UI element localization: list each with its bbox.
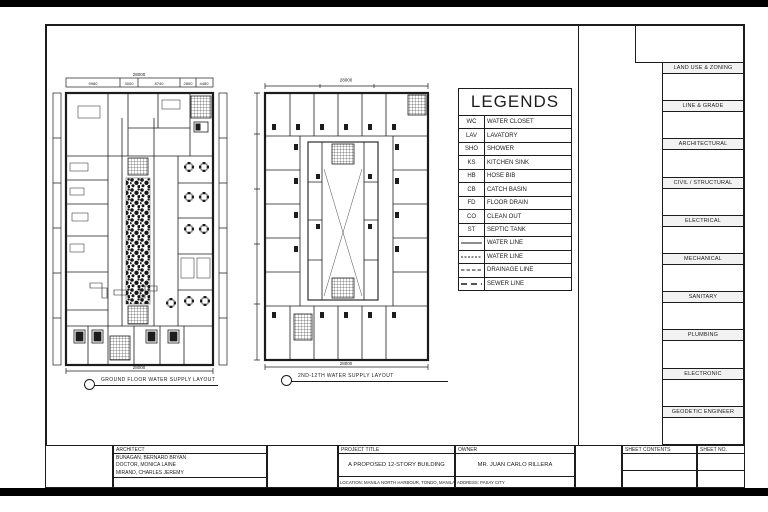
plan2-total-dim-bottom: 28000 bbox=[340, 361, 353, 366]
plan2-caption-text: 2ND-12TH WATER SUPPLY LAYOUT bbox=[298, 373, 394, 381]
architect-name: BUNAGAN, BERNARD BRYAN bbox=[116, 455, 264, 462]
discipline-index-sidebar: LAND USE & ZONING LINE & GRADE ARCHITECT… bbox=[662, 63, 744, 445]
plan2-total-dim-top: 28000 bbox=[340, 78, 353, 83]
architect-name: DOCTOR, MONICA LAINE bbox=[116, 462, 264, 469]
sidebar-empty-box bbox=[662, 302, 744, 330]
sheet-no-cell: SHEET NO. bbox=[697, 445, 745, 488]
legend-label: LAVATORY bbox=[485, 129, 571, 141]
legend-label: SEWER LINE bbox=[485, 278, 571, 290]
plan2-walls bbox=[265, 93, 428, 360]
legend-label: HOSE BIB bbox=[485, 170, 571, 182]
sidebar-section: CIVIL / STRUCTURAL bbox=[662, 178, 744, 216]
plan1-dining-tables bbox=[166, 162, 210, 308]
drainage-line-icon bbox=[459, 264, 485, 276]
sidebar-empty-box bbox=[662, 226, 744, 254]
title-block: ARCHITECT BUNAGAN, BERNARD BRYAN DOCTOR,… bbox=[45, 445, 745, 488]
legend-label: SHOWER bbox=[485, 143, 571, 155]
plan1-bottom-dimension: 28000 bbox=[66, 365, 213, 374]
plan1-dim-seg: 4480 bbox=[200, 81, 210, 86]
water-line-dashed-icon bbox=[459, 251, 485, 263]
owner-cell: OWNER MR. JUAN CARLO RILLERA ADDRESS: PA… bbox=[455, 445, 575, 488]
sheet-vertical-divider bbox=[578, 24, 579, 445]
legend-row: COCLEAN OUT bbox=[459, 210, 571, 223]
sheet-no-row bbox=[698, 454, 744, 471]
sidebar-empty-box bbox=[662, 340, 744, 368]
plan1-stair-cores bbox=[110, 96, 211, 360]
legend-abbr: FD bbox=[459, 197, 485, 209]
legend-line-row: DRAINAGE LINE bbox=[459, 264, 571, 277]
sidebar-section: GEODETIC ENGINEER bbox=[662, 407, 744, 445]
plan1-total-dim-bottom: 28000 bbox=[133, 365, 146, 370]
legend-abbr: CB bbox=[459, 183, 485, 195]
sheet-contents-row bbox=[623, 471, 696, 487]
legend-label: WATER LINE bbox=[485, 237, 571, 249]
project-title-text: A PROPOSED 12-STORY BUILDING bbox=[339, 454, 454, 477]
sidebar-section: ELECTRICAL bbox=[662, 216, 744, 254]
legends-box: LEGENDS WCWATER CLOSET LAVLAVATORY SHOSH… bbox=[458, 88, 572, 291]
sheet-no-row bbox=[698, 471, 744, 487]
architect-names: BUNAGAN, BERNARD BRYAN DOCTOR, MONICA LA… bbox=[114, 454, 266, 478]
titleblock-empty-cell bbox=[45, 445, 113, 488]
sheet-contents-row bbox=[623, 454, 696, 471]
sidebar-section: SANITARY bbox=[662, 292, 744, 330]
project-location-text: LOCATION: MANILA NORTH HARBOUR, TONDO, M… bbox=[339, 477, 454, 487]
typical-floor-plan-drawing: 28000 bbox=[250, 74, 435, 374]
sidebar-empty-box bbox=[662, 417, 744, 445]
drawing-bubble-icon bbox=[84, 379, 95, 390]
architect-header: ARCHITECT bbox=[114, 446, 266, 454]
legend-row: WCWATER CLOSET bbox=[459, 116, 571, 129]
sewer-line-icon bbox=[459, 278, 485, 290]
plan1-caption: GROUND FLOOR WATER SUPPLY LAYOUT bbox=[84, 377, 218, 386]
project-title-cell: PROJECT TITLE A PROPOSED 12-STORY BUILDI… bbox=[338, 445, 455, 488]
legend-label: KITCHEN SINK bbox=[485, 156, 571, 168]
plan2-caption: 2ND-12TH WATER SUPPLY LAYOUT bbox=[281, 373, 448, 382]
sidebar-empty-box bbox=[662, 264, 744, 292]
plan2-atrium-x bbox=[324, 169, 362, 296]
water-line-solid-icon bbox=[459, 237, 485, 249]
sheet-contents-header: SHEET CONTENTS bbox=[623, 446, 696, 454]
sheet-no-header: SHEET NO. bbox=[698, 446, 744, 454]
architect-cell: ARCHITECT BUNAGAN, BERNARD BRYAN DOCTOR,… bbox=[113, 445, 267, 488]
owner-address-text: ADDRESS: PASAY CITY bbox=[456, 477, 574, 487]
sidebar-section: LAND USE & ZONING bbox=[662, 63, 744, 101]
sidebar-section: LINE & GRADE bbox=[662, 101, 744, 139]
legend-row: KSKITCHEN SINK bbox=[459, 156, 571, 169]
architect-signature-row bbox=[114, 478, 266, 487]
titleblock-empty-cell bbox=[267, 445, 338, 488]
legend-row: HBHOSE BIB bbox=[459, 170, 571, 183]
sidebar-empty-box bbox=[662, 379, 744, 407]
plan1-dim-seg: 3000 bbox=[125, 81, 135, 86]
plan1-total-dim-top: 28000 bbox=[133, 72, 146, 77]
plan1-dim-seg: 9980 bbox=[89, 81, 99, 86]
sheet-header-box bbox=[635, 24, 745, 63]
legend-abbr: ST bbox=[459, 224, 485, 236]
plan1-planting-strip bbox=[126, 178, 150, 304]
legend-label: SEPTIC TANK bbox=[485, 224, 571, 236]
legend-label: DRAINAGE LINE bbox=[485, 264, 571, 276]
sidebar-section: MECHANICAL bbox=[662, 254, 744, 292]
legend-label: CATCH BASIN bbox=[485, 183, 571, 195]
sheet-contents-cell: SHEET CONTENTS bbox=[622, 445, 697, 488]
legend-line-row: WATER LINE bbox=[459, 237, 571, 250]
sidebar-section: PLUMBING bbox=[662, 330, 744, 368]
sidebar-empty-box bbox=[662, 111, 744, 139]
legend-abbr: LAV bbox=[459, 129, 485, 141]
legend-row: CBCATCH BASIN bbox=[459, 183, 571, 196]
owner-name-text: MR. JUAN CARLO RILLERA bbox=[456, 454, 574, 477]
legend-line-row: WATER LINE bbox=[459, 251, 571, 264]
legend-label: CLEAN OUT bbox=[485, 210, 571, 222]
legend-label: FLOOR DRAIN bbox=[485, 197, 571, 209]
sidebar-section: ARCHITECTURAL bbox=[662, 139, 744, 177]
ground-floor-plan-drawing: 28000 9980 3000 8740 2800 4480 bbox=[50, 68, 230, 378]
legends-title: LEGENDS bbox=[459, 89, 571, 116]
sidebar-empty-box bbox=[662, 149, 744, 177]
legend-label: WATER CLOSET bbox=[485, 116, 571, 128]
legend-row: STSEPTIC TANK bbox=[459, 224, 571, 237]
sidebar-empty-box bbox=[662, 73, 744, 101]
legend-row: FDFLOOR DRAIN bbox=[459, 197, 571, 210]
drawing-bubble-icon bbox=[281, 375, 292, 386]
plan1-dim-seg: 2800 bbox=[184, 81, 194, 86]
sidebar-empty-box bbox=[662, 188, 744, 216]
letterbox-top-bar bbox=[0, 0, 768, 7]
legend-abbr: HB bbox=[459, 170, 485, 182]
legend-line-row: SEWER LINE bbox=[459, 278, 571, 290]
legend-label: WATER LINE bbox=[485, 251, 571, 263]
legend-abbr: CO bbox=[459, 210, 485, 222]
legend-row: SHOSHOWER bbox=[459, 143, 571, 156]
project-title-header: PROJECT TITLE bbox=[339, 446, 454, 454]
plan2-top-dimension: 28000 bbox=[254, 78, 428, 361]
sidebar-section: ELECTRONIC bbox=[662, 369, 744, 407]
legend-row: LAVLAVATORY bbox=[459, 129, 571, 142]
plan2-bottom-dimension: 28000 bbox=[265, 361, 428, 370]
architect-name: MIRAND, CHARLES JEREMY bbox=[116, 470, 264, 477]
plan1-caption-text: GROUND FLOOR WATER SUPPLY LAYOUT bbox=[101, 377, 215, 385]
letterbox-bottom-bar bbox=[0, 488, 768, 496]
owner-header: OWNER bbox=[456, 446, 574, 454]
plan1-dim-seg: 8740 bbox=[155, 81, 165, 86]
legend-abbr: SHO bbox=[459, 143, 485, 155]
legend-abbr: WC bbox=[459, 116, 485, 128]
titleblock-empty-cell bbox=[575, 445, 622, 488]
legend-abbr: KS bbox=[459, 156, 485, 168]
